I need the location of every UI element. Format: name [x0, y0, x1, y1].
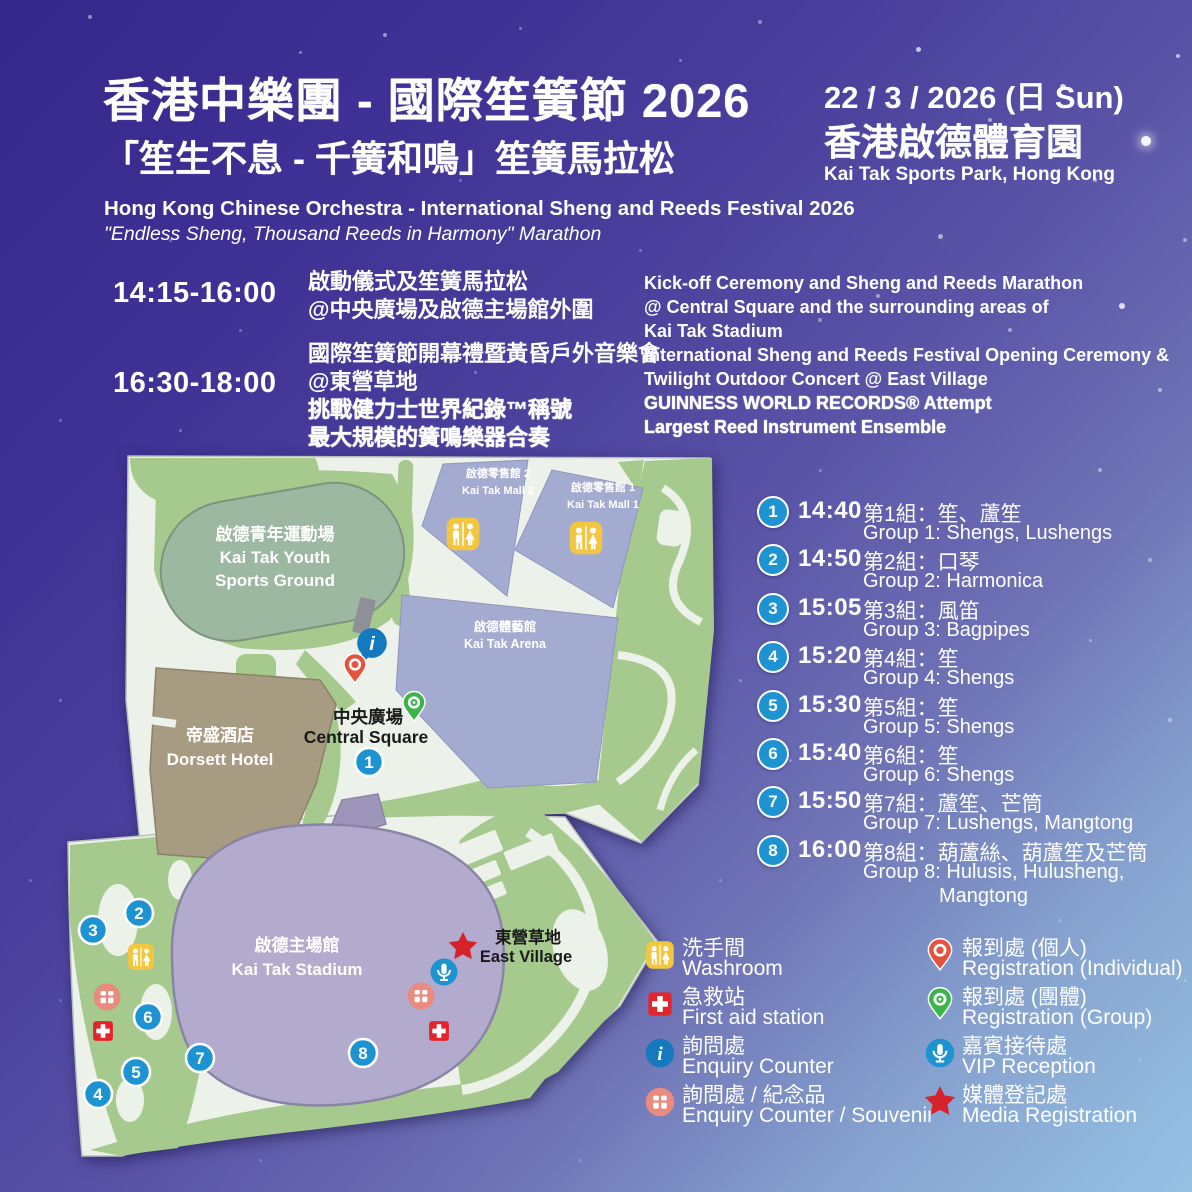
group-item: 214:50第2組：口琴Group 2: Harmonica [757, 545, 1189, 593]
schedule-en-line: @ Central Square and the surrounding are… [644, 295, 1083, 319]
schedule-zh-lines: 國際笙簧節開幕禮暨黃昏戶外音樂會@東營草地挑戰健力士世界紀錄™稱號最大規模的簧鳴… [308, 340, 660, 452]
group-item: 515:30第5組：笙Group 5: Shengs [757, 691, 1189, 739]
legend-item: 報到處 (團體)Registration (Group) [922, 981, 1192, 1030]
legend-label-en: First aid station [682, 1006, 824, 1030]
washroom-icon [642, 935, 678, 975]
svg-text:3: 3 [88, 921, 97, 940]
map-marker-badge-8: 8 [349, 1039, 377, 1067]
map-mic-icon [431, 959, 458, 986]
group-time: 14:50 [798, 545, 862, 573]
legend-item: 報到處 (個人)Registration (Individual) [922, 932, 1192, 981]
map-marker-badge-1: 1 [355, 748, 383, 776]
map-label: 啟德體藝館 [474, 619, 537, 634]
legend-item: i詢問處Enquiry Counter [642, 1030, 942, 1079]
schedule-en-line: Kick-off Ceremony and Sheng and Reeds Ma… [644, 271, 1083, 295]
souvenir-icon [642, 1082, 678, 1122]
group-time: 15:05 [798, 594, 862, 622]
group-time: 16:00 [798, 836, 862, 864]
schedule-en-lines: International Sheng and Reeds Festival O… [644, 343, 1169, 439]
legend-label-en: Media Registration [962, 1104, 1137, 1128]
map-label: 啟德青年運動場 [216, 524, 335, 544]
group-number-badge: 8 [757, 835, 789, 867]
legend-label-en: VIP Reception [962, 1055, 1096, 1079]
group-label-en-cont: Mangtong [939, 885, 1028, 908]
map-firstaid-icon [93, 1021, 113, 1041]
map-marker-badge-3: 3 [79, 916, 107, 944]
map-label: East Village [480, 948, 572, 966]
schedule-zh-line: @東營草地 [308, 368, 660, 396]
map-label: Central Square [304, 727, 429, 747]
group-item: 615:40第6組：笙Group 6: Shengs [757, 739, 1189, 787]
schedule-zh-line: 啟動儀式及笙簧馬拉松 [308, 268, 593, 296]
group-label-en: Group 2: Harmonica [863, 570, 1043, 593]
group-label-en: Group 8: Hulusis, Hulusheng, [863, 861, 1124, 884]
map-label: Kai Tak Stadium [232, 960, 363, 979]
poster-subtitle-zh: 「笙生不息 - 千簧和鳴」笙簧馬拉松 [103, 130, 675, 182]
group-schedule-list: 114:40第1組：笙、蘆笙Group 1: Shengs, Lushengs2… [757, 497, 1189, 920]
map-label: Dorsett Hotel [167, 750, 274, 769]
group-time: 15:50 [798, 787, 862, 815]
group-number-badge: 2 [757, 544, 789, 576]
pin-red-icon [922, 935, 958, 975]
map-label: Kai Tak Mall 1 [567, 499, 639, 511]
pin-green-icon [922, 984, 958, 1024]
legend-item: 洗手間Washroom [642, 932, 942, 981]
event-date: 22 / 3 / 2026 (日 Sun) [824, 72, 1124, 117]
group-label-en: Group 3: Bagpipes [863, 619, 1030, 642]
schedule-zh-lines: 啟動儀式及笙簧馬拉松@中央廣場及啟德主場館外圍 [308, 268, 593, 324]
svg-text:4: 4 [93, 1085, 103, 1104]
group-item: 315:05第3組：風笛Group 3: Bagpipes [757, 594, 1189, 642]
map-firstaid-icon [429, 1021, 449, 1041]
svg-text:5: 5 [131, 1063, 140, 1082]
group-label-en: Group 6: Shengs [863, 764, 1014, 787]
map-washroom-icon [447, 518, 480, 551]
legend-item: 急救站First aid station [642, 981, 942, 1030]
group-time: 14:40 [798, 497, 862, 525]
schedule-zh-line: @中央廣場及啟德主場館外圍 [308, 296, 593, 324]
schedule-en-line: GUINNESS WORLD RECORDS® Attempt [644, 391, 1169, 415]
star-icon [922, 1082, 958, 1122]
event-poster: 香港中樂團 - 國際笙簧節 2026 「笙生不息 - 千簧和鳴」笙簧馬拉松 Ho… [0, 0, 1192, 1192]
map-label: 啟德零售館 1 [571, 480, 635, 494]
poster-title-en: Hong Kong Chinese Orchestra - Internatio… [104, 197, 855, 221]
group-number-badge: 1 [757, 496, 789, 528]
legend-label-en: Washroom [682, 957, 783, 981]
legend-item: 詢問處 / 紀念品Enquiry Counter / Souvenir [642, 1079, 942, 1128]
map-label: Sports Ground [215, 571, 335, 590]
group-number-badge: 5 [757, 690, 789, 722]
map-label: 東營草地 [495, 927, 562, 947]
group-number-badge: 3 [757, 593, 789, 625]
map-marker-badge-5: 5 [122, 1058, 150, 1086]
schedule-zh-line: 國際笙簧節開幕禮暨黃昏戶外音樂會 [308, 340, 660, 368]
group-number-badge: 7 [757, 786, 789, 818]
mic-icon [922, 1033, 958, 1073]
svg-text:8: 8 [358, 1044, 367, 1063]
poster-title-zh: 香港中樂團 - 國際笙簧節 2026 [103, 62, 750, 131]
group-time: 15:30 [798, 691, 862, 719]
group-item: 114:40第1組：笙、蘆笙Group 1: Shengs, Lushengs [757, 497, 1189, 545]
map-washroom-icon [570, 522, 603, 555]
legend-label-en: Enquiry Counter [682, 1055, 834, 1079]
map-marker-badge-6: 6 [134, 1003, 162, 1031]
map-label: 啟德主場館 [255, 935, 340, 955]
svg-text:2: 2 [134, 904, 143, 923]
schedule-time: 14:15-16:00 [113, 277, 277, 310]
group-item: 816:00第8組：葫蘆絲、葫蘆笙及芒筒Group 8: Hulusis, Hu… [757, 836, 1189, 920]
map-label: 帝盛酒店 [186, 725, 254, 745]
schedule-zh-line: 最大規模的簧鳴樂器合奏 [308, 424, 660, 452]
group-number-badge: 4 [757, 641, 789, 673]
group-item: 415:20第4組：笙Group 4: Shengs [757, 642, 1189, 690]
legend-left-column: 洗手間Washroom 急救站First aid station i詢問處Enq… [642, 932, 942, 1128]
group-label-en: Group 5: Shengs [863, 716, 1014, 739]
legend-label-en: Registration (Individual) [962, 957, 1183, 981]
svg-text:i: i [369, 633, 375, 655]
venue-zh: 香港啟德體育園 [824, 112, 1083, 166]
group-label-en: Group 4: Shengs [863, 667, 1014, 690]
group-time: 15:40 [798, 739, 862, 767]
map-label: 中央廣場 [333, 707, 403, 727]
legend-item: 嘉賓接待處VIP Reception [922, 1030, 1192, 1079]
enquiry-icon: i [642, 1033, 678, 1073]
map-washroom-icon [128, 944, 154, 970]
first-aid-icon [642, 984, 678, 1024]
schedule-zh-line: 挑戰健力士世界紀錄™稱號 [308, 396, 660, 424]
svg-text:1: 1 [364, 753, 373, 772]
poster-subtitle-en: "Endless Sheng, Thousand Reeds in Harmon… [104, 223, 601, 246]
group-time: 15:20 [798, 642, 862, 670]
legend-label-en: Enquiry Counter / Souvenir [682, 1104, 934, 1128]
svg-text:i: i [657, 1044, 663, 1065]
group-label-en: Group 1: Shengs, Lushengs [863, 522, 1112, 545]
group-label-en: Group 7: Lushengs, Mangtong [863, 812, 1133, 835]
legend-label-en: Registration (Group) [962, 1006, 1152, 1030]
map-souvenir-icon [94, 984, 121, 1011]
map-label: Kai Tak Youth [220, 548, 331, 567]
svg-text:7: 7 [195, 1049, 204, 1068]
schedule-en-lines: Kick-off Ceremony and Sheng and Reeds Ma… [644, 271, 1083, 343]
map-marker-badge-7: 7 [186, 1044, 214, 1072]
schedule-time: 16:30-18:00 [113, 367, 277, 400]
schedule-en-line: International Sheng and Reeds Festival O… [644, 343, 1169, 367]
site-map: 啟德青年運動場Kai Tak YouthSports Ground啟德零售館 2… [60, 450, 740, 1165]
venue-en: Kai Tak Sports Park, Hong Kong [824, 164, 1115, 186]
map-label: Kai Tak Mall 2 [462, 485, 534, 497]
svg-text:6: 6 [143, 1008, 152, 1027]
schedule-en-line: Largest Reed Instrument Ensemble [644, 415, 1169, 439]
map-label: 啟德零售館 2 [466, 466, 530, 480]
map-marker-badge-4: 4 [84, 1080, 112, 1108]
schedule-en-line: Twilight Outdoor Concert @ East Village [644, 367, 1169, 391]
legend-item: 媒體登記處Media Registration [922, 1079, 1192, 1128]
group-item: 715:50第7組：蘆笙、芒筒Group 7: Lushengs, Mangto… [757, 787, 1189, 835]
group-number-badge: 6 [757, 738, 789, 770]
map-souvenir-icon [408, 983, 435, 1010]
map-marker-badge-2: 2 [125, 899, 153, 927]
map-label: Kai Tak Arena [464, 637, 547, 651]
legend-right-column: 報到處 (個人)Registration (Individual) 報到處 (團… [922, 932, 1192, 1128]
